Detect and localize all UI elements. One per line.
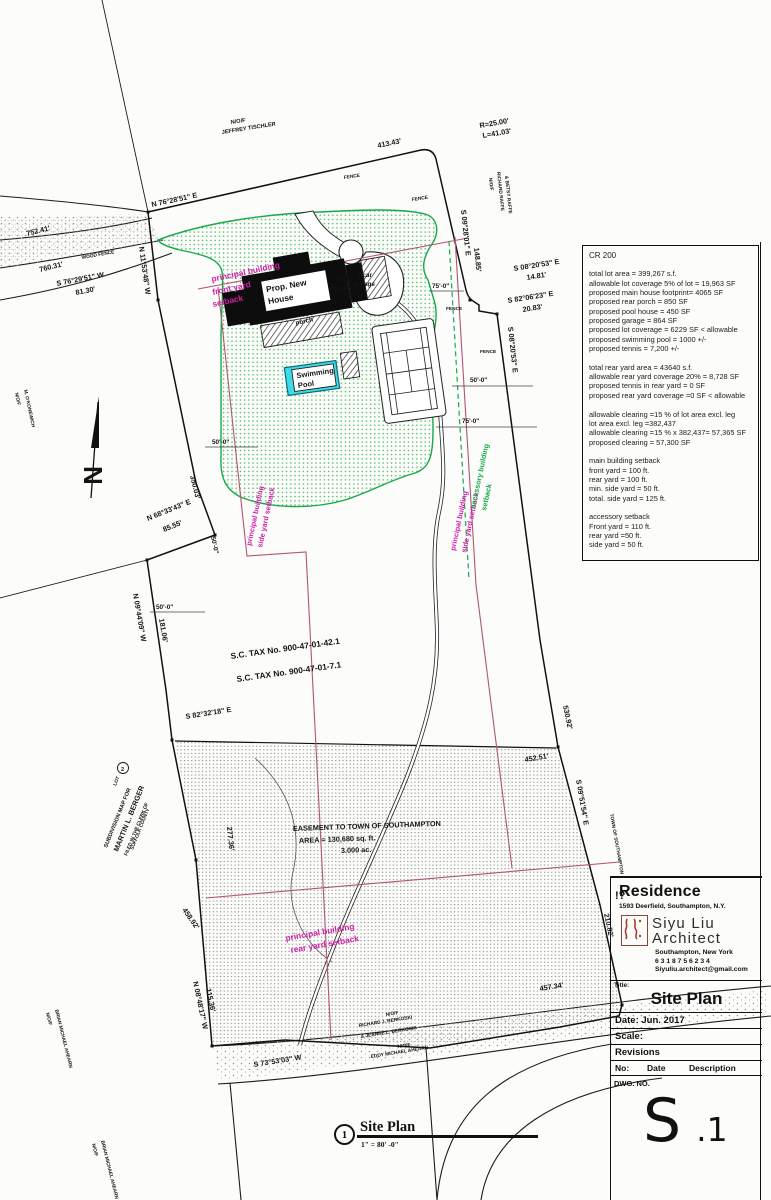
project-address: 1593 Deerfield, Southampton, N.Y. bbox=[611, 901, 762, 910]
bearing-label: N 09°44'09" W bbox=[131, 593, 148, 643]
sheet-number: S .1 bbox=[611, 1088, 762, 1150]
tax-label: S.C. TAX No. 900-47-01-7.1 bbox=[236, 659, 342, 684]
easement-label: 3.000 ac. bbox=[341, 845, 372, 855]
note-line bbox=[589, 400, 752, 409]
note-line: proposed clearing = 57,300 SF bbox=[589, 438, 752, 447]
distance-label: 20.83' bbox=[522, 302, 543, 314]
note-line: allowable rear yard coverage 20% = 8,728… bbox=[589, 372, 752, 381]
distance-label: 85.55' bbox=[161, 518, 183, 534]
note-line bbox=[589, 503, 752, 512]
dimension-label: 75'-0" bbox=[432, 283, 449, 290]
note-line: proposed swimming pool = 1000 +/- bbox=[589, 335, 752, 344]
neighbor-lines bbox=[0, 0, 148, 598]
note-line: allowable clearing =15 % x 382,437= 57,3… bbox=[589, 428, 752, 437]
dimension-label: 50'-0" bbox=[212, 439, 229, 446]
porte-cochere-label: porte bbox=[336, 276, 352, 283]
note-line: accessory setback bbox=[589, 512, 752, 521]
note-line: front yard = 100 ft. bbox=[589, 466, 752, 475]
dimension-label: 50'-0" bbox=[156, 604, 173, 611]
note-line bbox=[589, 353, 752, 362]
architect-name: Siyu Liu Architect bbox=[652, 915, 721, 946]
note-line: Front yard = 110 ft. bbox=[589, 522, 752, 531]
bearing-label: S 82°06'23" E bbox=[507, 289, 554, 305]
owner-label: N/O/F bbox=[44, 1012, 53, 1026]
note-line: main building setback bbox=[589, 456, 752, 465]
subdivision-note: SUBDIVISION MAP FOR MARTIN L. BERGER FIL… bbox=[103, 763, 151, 857]
owner-label: N/O/F bbox=[487, 178, 494, 191]
bearing-label: N 68°33'43" E bbox=[145, 497, 192, 523]
distance-label: 530.92' bbox=[561, 705, 575, 731]
owner-label: JEFFREY TISCHLER bbox=[221, 122, 276, 136]
note-line: total lot area = 399,267 s.f. bbox=[589, 269, 752, 278]
bearing-label: N 11°53'48" W bbox=[137, 246, 153, 295]
note-line: allowable clearing =15 % of lot area exc… bbox=[589, 410, 752, 419]
garage-label: 3 car bbox=[357, 272, 372, 279]
owner-label: N/O/F bbox=[230, 118, 246, 126]
note-line: total rear yard area = 43640 s.f. bbox=[589, 363, 752, 372]
note-line: proposed pool house = 450 SF bbox=[589, 307, 752, 316]
note-line: proposed rear porch = 850 SF bbox=[589, 297, 752, 306]
distance-label: 81.30' bbox=[75, 284, 97, 297]
note-line: proposed rear yard coverage =0 SF < allo… bbox=[589, 391, 752, 400]
notes-title: CR 200 bbox=[589, 251, 752, 260]
north-letter: N bbox=[78, 466, 108, 485]
project-name: Residence bbox=[611, 878, 762, 901]
detail-marker: 1 bbox=[334, 1124, 355, 1145]
tax-label: S.C. TAX No. 900-47-01-42.1 bbox=[230, 636, 341, 661]
note-line: proposed tennis = 7,200 +/- bbox=[589, 344, 752, 353]
note-line: proposed garage = 864 SF bbox=[589, 316, 752, 325]
date-row: Date: Jun. 2017 bbox=[611, 1012, 762, 1028]
detail-title-rule bbox=[357, 1135, 538, 1138]
lot-number: 2 bbox=[121, 767, 124, 773]
distance-label: 413.43' bbox=[377, 136, 403, 150]
note-line: lot area excl. leg =382,437 bbox=[589, 419, 752, 428]
bearing-label: S 76°29'51" W bbox=[56, 270, 105, 288]
lot-label: LOT bbox=[112, 776, 121, 787]
north-arrow: N bbox=[78, 396, 108, 498]
revisions-row: Revisions bbox=[611, 1044, 762, 1060]
sheet-title: Site Plan bbox=[611, 989, 762, 1012]
office-city: Southampton, New York bbox=[655, 949, 762, 958]
note-line: min. side yard = 50 ft. bbox=[589, 484, 752, 493]
distance-label: 458.92' bbox=[180, 906, 201, 931]
note-line: side yard = 50 ft. bbox=[589, 540, 752, 549]
owner-label: BRIAN MICHAEL AHEARN bbox=[99, 1140, 119, 1200]
note-line: proposed lot coverage = 6229 SF < allowa… bbox=[589, 325, 752, 334]
fence-label: FENCE bbox=[480, 349, 497, 355]
fence-label: FENCE bbox=[446, 306, 463, 312]
architect-brand: Siyu Liu Architect bbox=[611, 910, 762, 946]
tennis-court bbox=[371, 318, 446, 424]
site-plan-sheet: N Prop. New House porch porte cochere 3 … bbox=[0, 0, 771, 1200]
architect-contact: Southampton, New York 6 3 1 8 7 5 6 2 3 … bbox=[611, 946, 762, 980]
dimension-label: 50'-0" bbox=[470, 377, 487, 384]
bearing-label: S 09°28'01" E bbox=[459, 209, 473, 256]
fence-label: FENCE bbox=[343, 173, 361, 181]
dwg-no-label: DWG. NO. bbox=[611, 1075, 762, 1088]
rev-date-label: Date bbox=[647, 1063, 689, 1073]
revisions-header: No: Date Description bbox=[611, 1060, 762, 1075]
title-block: Residence 1593 Deerfield, Southampton, N… bbox=[610, 876, 762, 1200]
architect-name-line: Architect bbox=[652, 931, 721, 946]
distance-label: 350.03' bbox=[188, 474, 203, 500]
owner-label: BRIAN MICHAEL AHEARN bbox=[53, 1009, 73, 1069]
owner-label: TOWN OF SOUTHAMPTON bbox=[608, 813, 625, 875]
note-line: allowable lot coverage 5% of lot = 19,96… bbox=[589, 279, 752, 288]
office-phone: 6 3 1 8 7 5 6 2 3 4 bbox=[655, 958, 762, 967]
fence-label: FENCE bbox=[411, 195, 429, 203]
note-line: proposed main house footprint= 4065 SF bbox=[589, 288, 752, 297]
distance-label: 14.81' bbox=[526, 270, 547, 282]
owner-label: M. O'KONEWICH bbox=[22, 389, 36, 428]
sheet-number-sub: .1 bbox=[696, 1110, 728, 1149]
detail-number: 1 bbox=[342, 1129, 348, 1141]
architect-seal-logo bbox=[621, 915, 648, 946]
note-line: rear yard =50 ft. bbox=[589, 531, 752, 540]
distance-label: 148.85' bbox=[472, 247, 483, 272]
garage-label: garage bbox=[354, 281, 375, 288]
rev-no-label: No: bbox=[615, 1063, 647, 1073]
architect-name-line: Siyu Liu bbox=[652, 916, 721, 931]
sheet-number-main: S bbox=[643, 1092, 681, 1150]
dimension-label: 75'-0" bbox=[462, 418, 479, 425]
note-line: proposed tennis in rear yard = 0 SF bbox=[589, 381, 752, 390]
owner-label: N/O/F bbox=[13, 392, 22, 406]
rev-desc-label: Description bbox=[689, 1063, 736, 1073]
note-line: total. side yard = 125 ft. bbox=[589, 494, 752, 503]
detail-title: Site Plan bbox=[360, 1119, 415, 1136]
dimension-label: 50'-0" bbox=[209, 536, 219, 554]
detail-scale: 1" = 80' -0" bbox=[361, 1140, 399, 1149]
note-line bbox=[589, 447, 752, 456]
title-label: Title: bbox=[611, 981, 762, 989]
office-email: Siyuliu.architect@gmail.com bbox=[655, 966, 762, 975]
pool-house bbox=[340, 351, 359, 379]
bearing-label: S 08°20'53" E bbox=[506, 326, 520, 373]
bearing-label: S 82°32'18" E bbox=[185, 705, 232, 721]
scale-row: Scale: bbox=[611, 1028, 762, 1044]
note-line: rear yard = 100 ft. bbox=[589, 475, 752, 484]
owner-label: N/O/F bbox=[90, 1143, 99, 1157]
zoning-notes-box: CR 200 total lot area = 399,267 s.f. all… bbox=[582, 245, 759, 561]
porte-cochere-label: cochere bbox=[331, 285, 356, 292]
